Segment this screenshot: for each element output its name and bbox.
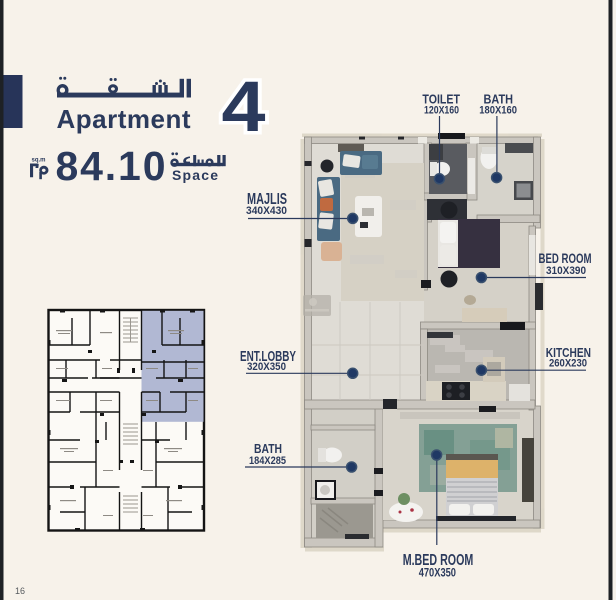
svg-text:470X350: 470X350 — [419, 567, 457, 580]
svg-text:Apartment: Apartment — [57, 104, 191, 134]
svg-text:BED ROOM: BED ROOM — [539, 250, 592, 266]
svg-text:184X285: 184X285 — [249, 455, 286, 467]
svg-text:84.10: 84.10 — [56, 143, 166, 189]
svg-text:340X430: 340X430 — [246, 205, 287, 217]
svg-text:BATH: BATH — [254, 442, 282, 456]
svg-text:4: 4 — [222, 68, 267, 147]
svg-text:180X160: 180X160 — [479, 105, 517, 117]
svg-text:sq.m: sq.m — [32, 158, 46, 164]
svg-text:16: 16 — [15, 586, 25, 596]
svg-text:Space: Space — [172, 167, 219, 183]
svg-text:120X160: 120X160 — [424, 105, 459, 117]
svg-text:260X230: 260X230 — [549, 358, 587, 370]
svg-text:310X390: 310X390 — [546, 265, 586, 277]
svg-text:320X350: 320X350 — [247, 361, 286, 373]
